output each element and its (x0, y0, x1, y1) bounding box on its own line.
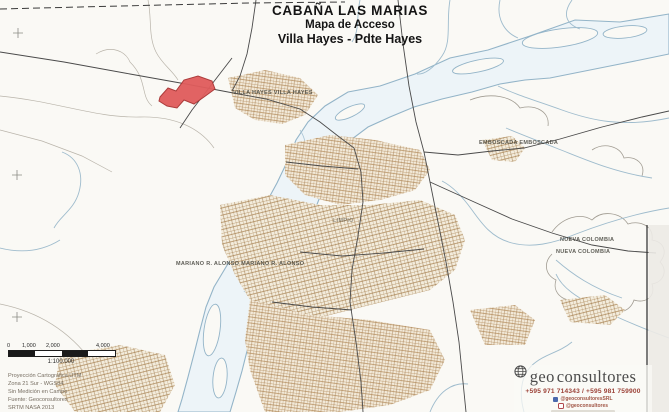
logo-name-suffix: consultores (557, 367, 637, 387)
facebook-icon (553, 397, 558, 402)
credits-block: Proyección Cartográfica UTM Zona 21 Sur … (8, 372, 81, 412)
title-block: CABAÑA LAS MARIAS Mapa de Acceso Villa H… (222, 3, 478, 46)
map-subtitle: Mapa de Acceso (222, 19, 478, 31)
logo-name: geo consultores (514, 367, 652, 387)
credit-projection: Proyección Cartográfica UTM (8, 372, 81, 380)
scale-ratio: 1:100.000 (6, 359, 116, 365)
scale-tick-2000: 2,000 (46, 343, 60, 349)
label-nueva-colombia-1: NUEVA COLOMBIA (560, 237, 614, 243)
credit-survey: Sin Medición en Campo (8, 388, 81, 396)
credit-zone: Zona 21 Sur - WGS84 (8, 380, 81, 388)
map-title: CABAÑA LAS MARIAS (222, 3, 478, 18)
scale-bar-graphic (8, 350, 116, 357)
credit-srtm: SRTM NASA 2013 (8, 404, 81, 412)
scale-bar: 0 1,000 2,000 4,000 1:100.000 (6, 343, 126, 365)
social-row-facebook: @geoconsultoresSRL (514, 396, 652, 402)
phone-number: +595 971 714343 / +595 981 759900 (514, 388, 652, 395)
logo-name-prefix: geo (530, 367, 555, 387)
label-emboscada: EMBOSCADA EMBOSCADA (479, 140, 558, 146)
instagram-icon (558, 403, 564, 409)
label-limpio: LIMPIO (333, 218, 354, 224)
credit-source: Fuente: Geoconsultores (8, 396, 81, 404)
label-nueva-colombia-2: NUEVA COLOMBIA (556, 249, 610, 255)
instagram-handle: @geoconsultores (566, 403, 608, 409)
scale-ticks: 0 1,000 2,000 4,000 (6, 343, 126, 350)
facebook-handle: @geoconsultoresSRL (560, 396, 612, 402)
scale-tick-0: 0 (7, 343, 10, 349)
map-document: CABAÑA LAS MARIAS Mapa de Acceso Villa H… (0, 0, 669, 412)
scale-tick-4000: 4,000 (96, 343, 110, 349)
scale-tick-1000: 1,000 (22, 343, 36, 349)
social-row-instagram: @geoconsultores (514, 403, 652, 409)
logo-block: geo consultores +595 971 714343 / +595 9… (514, 365, 652, 412)
map-location: Villa Hayes - Pdte Hayes (222, 32, 478, 46)
label-villa-hayes: VILLA HAYES VILLA HAYES (233, 90, 313, 96)
label-mariano-r-alonso: MARIANO R. ALONSO MARIANO R. ALONSO (176, 261, 304, 267)
